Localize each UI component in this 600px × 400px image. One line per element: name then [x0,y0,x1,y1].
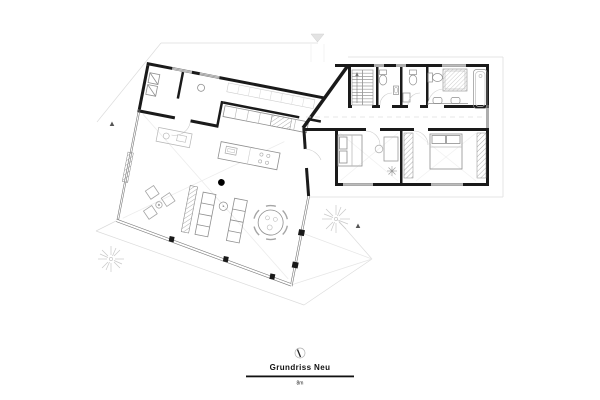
glass-facade-east [290,195,309,286]
terrace-guide-line [291,259,372,285]
title-block: Grundriss Neu 8m [246,348,354,387]
tall-cabinet-icon [270,115,292,130]
survey-marker-icon [356,224,361,229]
decor-icon [177,135,187,143]
toilet-icon [379,75,387,85]
bathroom [428,69,487,109]
pillow-icon [447,136,461,144]
wardrobe-icon [477,133,486,178]
kitchen [214,83,315,174]
bed-icon [430,134,462,169]
toilet-icon [410,70,417,75]
bedroom-2 [404,133,486,178]
sliding-door-glyph [122,152,133,182]
toilet-icon [409,75,417,85]
floor-plan-svg: Grundriss Neu 8m [0,0,600,400]
living-wing [109,62,331,287]
bathtub-drain [479,75,482,78]
living-wing-walls [137,62,325,147]
bedroom-1 [338,135,398,176]
plant-icon [387,166,397,176]
desk-icon [384,137,398,161]
sink-icon [451,98,460,104]
bedroom-wing [304,64,489,186]
north-arrow-icon [295,348,305,358]
wc-1 [379,70,398,95]
pillow-icon [432,136,446,144]
pillow-icon [340,151,348,163]
utility-appliance-icon [146,73,206,105]
shower-icon [443,69,467,91]
sofa-icon [195,192,247,243]
scale-label: 8m [297,381,304,387]
column-icon [217,178,225,186]
stairs-icon [352,70,373,105]
sideboard-icon [156,127,192,147]
title-underline [246,376,354,378]
tree-icon [98,246,124,272]
plan-title: Grundriss Neu [270,363,331,372]
section-marker-icon [311,34,324,62]
bathtub-inner [476,72,486,107]
site-boundary-line [97,43,161,122]
tree-icon [322,205,350,233]
terrace-edge [96,221,116,231]
pillow-icon [340,137,348,149]
toilet-icon [433,74,443,82]
dining-table-icon [251,203,291,243]
fireplace-icon [181,186,197,234]
toilet-icon [428,73,433,82]
survey-marker-icon [110,122,115,127]
terrace-guide-line [302,233,372,259]
wardrobe-icon [404,133,413,178]
door-swing-arc [306,149,322,160]
sink-icon [197,84,205,92]
terrace-edge [304,259,372,305]
toilet-icon [380,70,387,75]
lounge-chair-icon [140,184,177,223]
drawing-sheet: Grundriss Neu 8m [0,0,600,400]
decor-icon [163,133,170,140]
terrace-edge [96,231,304,305]
site-lines [96,43,503,305]
bed-icon [338,135,362,166]
wc-2 [403,70,417,102]
sink-icon [433,98,442,104]
